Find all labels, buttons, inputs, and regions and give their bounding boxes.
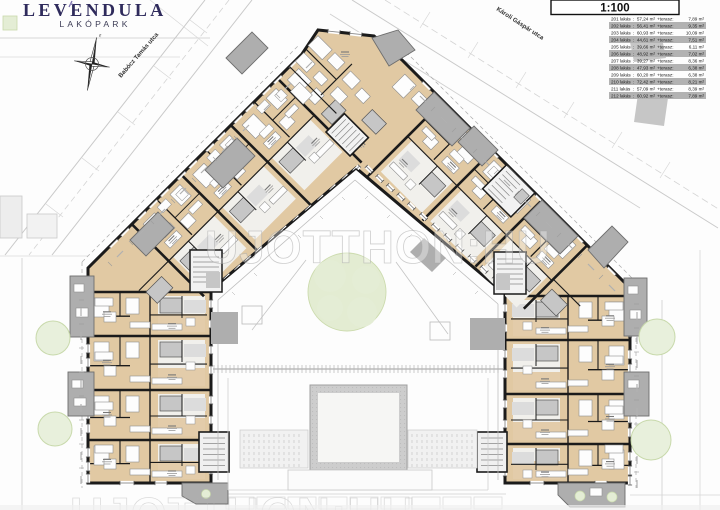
svg-text:+terasz:: +terasz: [657, 51, 673, 56]
svg-text:204 lakás: 204 lakás [611, 37, 631, 42]
svg-text:8,36 m²: 8,36 m² [688, 58, 704, 63]
svg-text::: : [633, 51, 634, 56]
svg-text:208 lakás: 208 lakás [611, 65, 631, 70]
svg-text:47,93 m²: 47,93 m² [637, 65, 656, 70]
svg-text:39,66 m²: 39,66 m² [637, 44, 656, 49]
svg-text:6,11 m²: 6,11 m² [689, 44, 705, 49]
svg-text:+terasz:: +terasz: [657, 44, 673, 49]
svg-text:+terasz:: +terasz: [657, 16, 673, 21]
svg-text:209 lakás: 209 lakás [611, 72, 631, 77]
svg-text:1:100: 1:100 [600, 3, 629, 15]
svg-text:212 lakás: 212 lakás [611, 93, 631, 98]
svg-text::: : [633, 72, 634, 77]
svg-text:44,61 m²: 44,61 m² [637, 37, 656, 42]
svg-text::: : [633, 65, 634, 70]
svg-text::: : [633, 86, 634, 91]
svg-text:7,51 m²: 7,51 m² [688, 37, 704, 42]
svg-text:+terasz:: +terasz: [657, 23, 673, 28]
svg-text:LEVENDULA: LEVENDULA [23, 0, 167, 20]
svg-text::: : [633, 58, 634, 63]
svg-text:9,35 m²: 9,35 m² [688, 23, 704, 28]
svg-text:10,09 m²: 10,09 m² [686, 30, 705, 35]
svg-text:60,93 m²: 60,93 m² [637, 30, 656, 35]
svg-text:+terasz:: +terasz: [657, 79, 673, 84]
svg-text:60,92 m²: 60,92 m² [637, 93, 656, 98]
svg-text:48,92 m²: 48,92 m² [637, 51, 656, 56]
svg-text:206 lakás: 206 lakás [611, 51, 631, 56]
svg-text:57,09 m²: 57,09 m² [637, 86, 656, 91]
svg-text:57,24 m²: 57,24 m² [637, 16, 656, 21]
svg-text:211 lakás: 211 lakás [611, 86, 631, 91]
svg-text:72,42 m²: 72,42 m² [637, 79, 656, 84]
svg-text:7,89 m²: 7,89 m² [688, 93, 704, 98]
svg-text::: : [633, 23, 634, 28]
svg-text:8,21 m²: 8,21 m² [688, 79, 704, 84]
svg-text::: : [633, 93, 634, 98]
svg-text:UJOTTHON:HU: UJOTTHON:HU [205, 221, 551, 273]
svg-text:201 lakás: 201 lakás [611, 16, 631, 21]
svg-text:+terasz:: +terasz: [657, 37, 673, 42]
svg-text:7,02 m²: 7,02 m² [688, 51, 704, 56]
svg-text:LAKÓPARK: LAKÓPARK [59, 19, 130, 29]
svg-text:6,38 m²: 6,38 m² [688, 65, 704, 70]
svg-text:205 lakás: 205 lakás [611, 44, 631, 49]
svg-text:+terasz:: +terasz: [657, 72, 673, 77]
svg-text:+terasz:: +terasz: [657, 93, 673, 98]
svg-text:203 lakás: 203 lakás [611, 30, 631, 35]
svg-text:+terasz:: +terasz: [657, 86, 673, 91]
svg-text:6,38 m²: 6,38 m² [688, 72, 704, 77]
svg-text:8,39 m²: 8,39 m² [688, 86, 704, 91]
svg-text::: : [633, 37, 634, 42]
svg-text:207 lakás: 207 lakás [611, 58, 631, 63]
svg-text:+terasz:: +terasz: [657, 30, 673, 35]
svg-text:56,41 m²: 56,41 m² [637, 23, 656, 28]
svg-text:202 lakás: 202 lakás [611, 23, 631, 28]
svg-text:39,27 m²: 39,27 m² [637, 58, 656, 63]
svg-text::: : [633, 79, 634, 84]
svg-text::: : [633, 30, 634, 35]
svg-text:+terasz:: +terasz: [657, 65, 673, 70]
svg-text::: : [633, 16, 634, 21]
svg-text:60,20 m²: 60,20 m² [637, 72, 656, 77]
svg-text:7,89 m²: 7,89 m² [688, 16, 704, 21]
svg-text:+terasz:: +terasz: [657, 58, 673, 63]
svg-text::: : [633, 44, 634, 49]
svg-text:210 lakás: 210 lakás [611, 79, 631, 84]
